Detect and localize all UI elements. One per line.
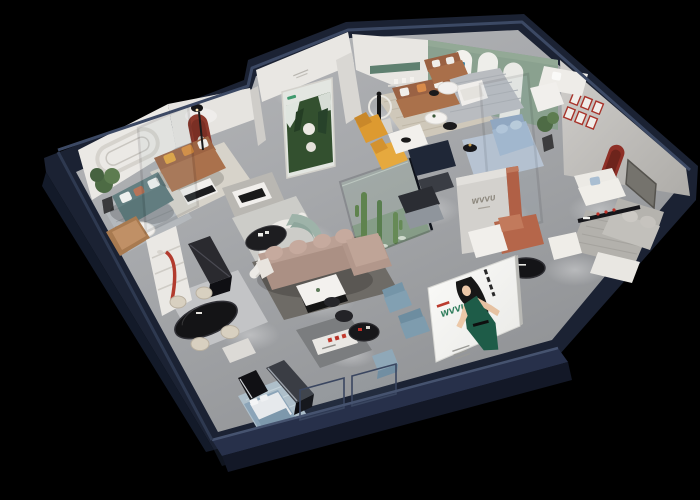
black-chair	[324, 297, 340, 307]
forest-poster	[282, 78, 335, 178]
poster-product-emblem	[303, 123, 315, 135]
shelf-mini-logo	[583, 217, 590, 219]
round-table-gallery	[438, 82, 458, 94]
black-stool-gallery	[429, 90, 439, 96]
showroom-3d-scene: M	[0, 0, 700, 500]
poster-product-emblem-2	[306, 142, 316, 152]
table-lamp	[469, 144, 472, 147]
black-chair	[335, 310, 353, 322]
showroom-render: M	[0, 0, 700, 500]
